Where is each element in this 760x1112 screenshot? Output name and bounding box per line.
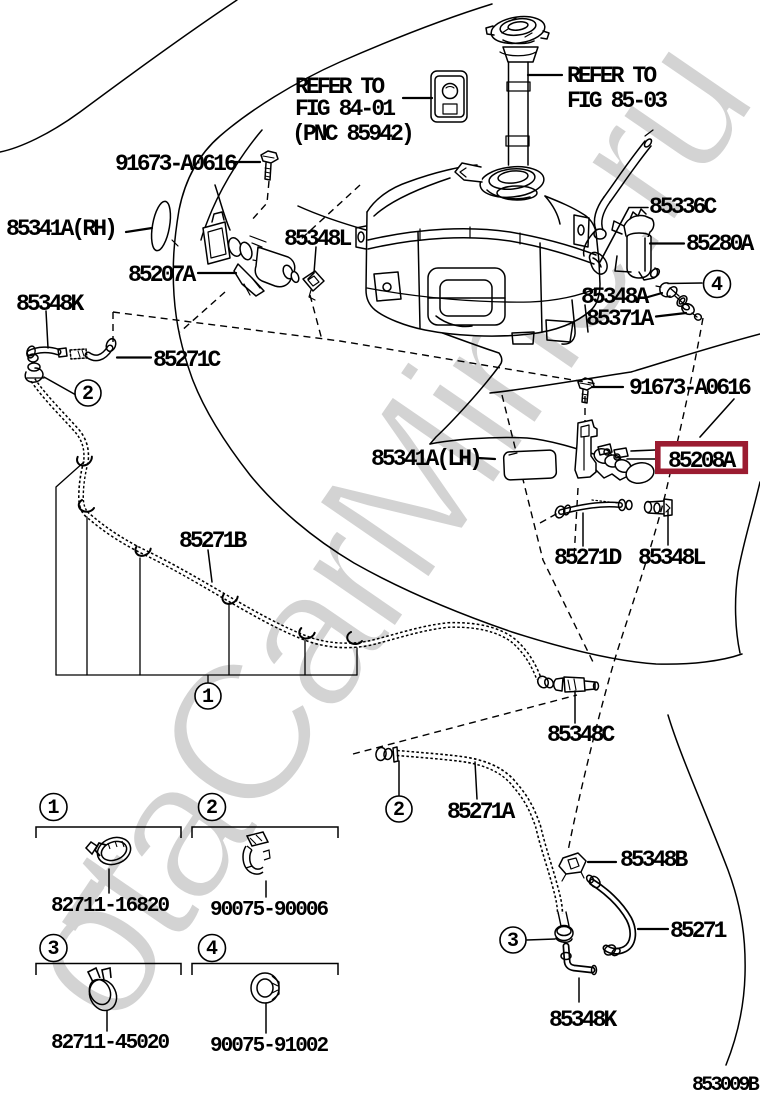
svg-text:2: 2: [82, 383, 94, 406]
svg-text:1: 1: [202, 686, 214, 709]
svg-text:85208A: 85208A: [668, 448, 737, 474]
svg-text:82711-45020: 82711-45020: [51, 1032, 170, 1055]
svg-text:85271C: 85271C: [153, 347, 222, 373]
svg-text:91673-A0616: 91673-A0616: [629, 375, 751, 401]
svg-text:85348C: 85348C: [547, 722, 616, 748]
svg-text:FIG 84-01: FIG 84-01: [295, 96, 395, 122]
svg-text:REFER TO: REFER TO: [567, 63, 656, 89]
svg-text:4: 4: [711, 274, 723, 297]
svg-text:85280A: 85280A: [686, 231, 755, 257]
svg-text:85348L: 85348L: [284, 226, 352, 252]
svg-text:85207A: 85207A: [128, 262, 197, 288]
svg-text:1: 1: [47, 797, 59, 820]
svg-text:3: 3: [507, 930, 519, 953]
svg-text:85348L: 85348L: [638, 545, 706, 571]
svg-text:82711-16820: 82711-16820: [51, 895, 170, 918]
svg-text:3: 3: [47, 938, 59, 961]
svg-text:85271B: 85271B: [179, 528, 248, 554]
svg-text:85271D: 85271D: [554, 545, 622, 571]
svg-text:85271: 85271: [670, 918, 727, 944]
svg-text:85336C: 85336C: [649, 194, 718, 220]
svg-text:85348K: 85348K: [16, 291, 85, 317]
svg-text:85348K: 85348K: [549, 1007, 618, 1033]
svg-text:90075-91002: 90075-91002: [210, 1035, 329, 1058]
svg-text:(PNC 85942): (PNC 85942): [292, 121, 412, 147]
svg-text:85341A(LH): 85341A(LH): [371, 446, 480, 472]
svg-text:2: 2: [206, 797, 218, 820]
svg-text:853009B: 853009B: [692, 1074, 760, 1097]
svg-text:2: 2: [393, 799, 405, 822]
svg-text:85348B: 85348B: [620, 847, 689, 873]
svg-text:85271A: 85271A: [447, 799, 516, 825]
svg-text:85371A: 85371A: [586, 306, 655, 332]
svg-text:90075-90006: 90075-90006: [210, 899, 329, 922]
svg-text:85341A(RH): 85341A(RH): [6, 216, 115, 242]
svg-text:FIG 85-03: FIG 85-03: [567, 88, 667, 114]
svg-text:4: 4: [206, 938, 218, 961]
svg-text:91673-A0616: 91673-A0616: [115, 151, 237, 177]
